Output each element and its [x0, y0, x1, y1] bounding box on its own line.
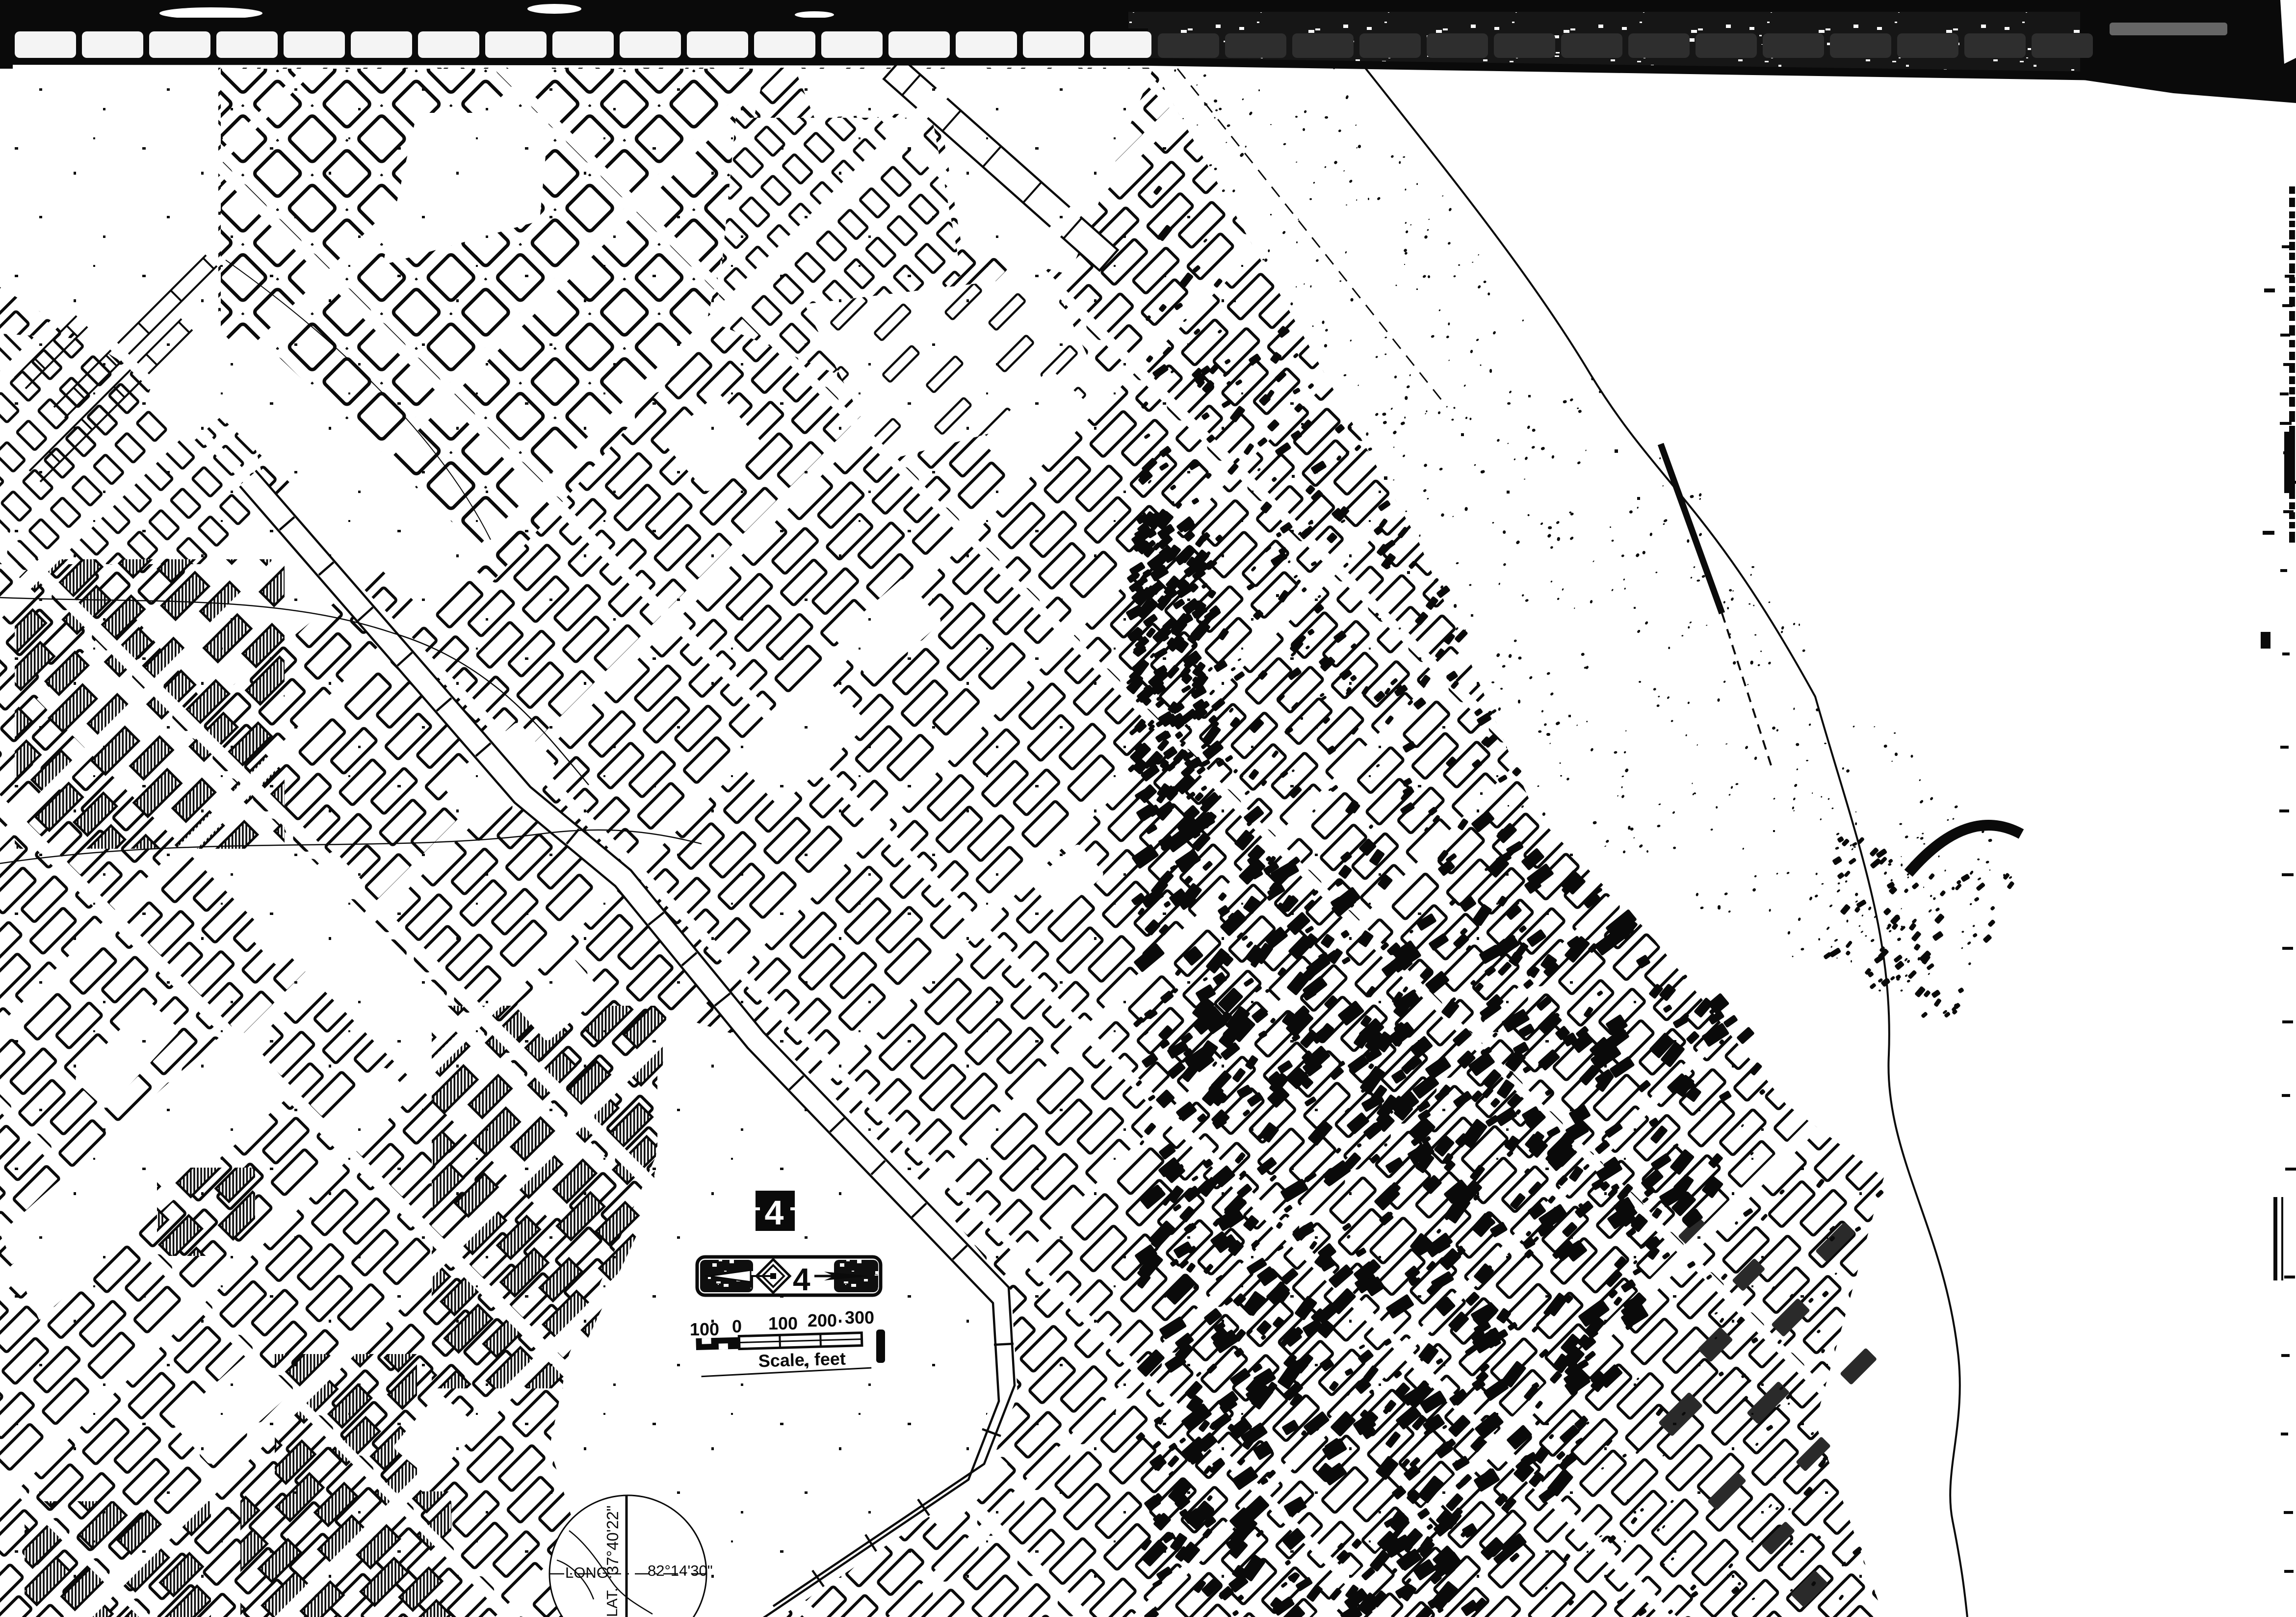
svg-text:0: 0 — [732, 1316, 742, 1336]
svg-text:82°14'30": 82°14'30" — [648, 1562, 713, 1579]
svg-text:100: 100 — [768, 1313, 798, 1333]
svg-text:300: 300 — [845, 1307, 874, 1328]
svg-text:200: 200 — [808, 1310, 837, 1330]
svg-text:4: 4 — [793, 1262, 810, 1297]
svg-text:Scale, feet: Scale, feet — [758, 1349, 846, 1371]
svg-text:4: 4 — [765, 1194, 784, 1232]
svg-text:LAT.: LAT. — [603, 1588, 621, 1617]
svg-text:LONG.: LONG. — [565, 1564, 612, 1581]
svg-text:100: 100 — [690, 1319, 719, 1339]
